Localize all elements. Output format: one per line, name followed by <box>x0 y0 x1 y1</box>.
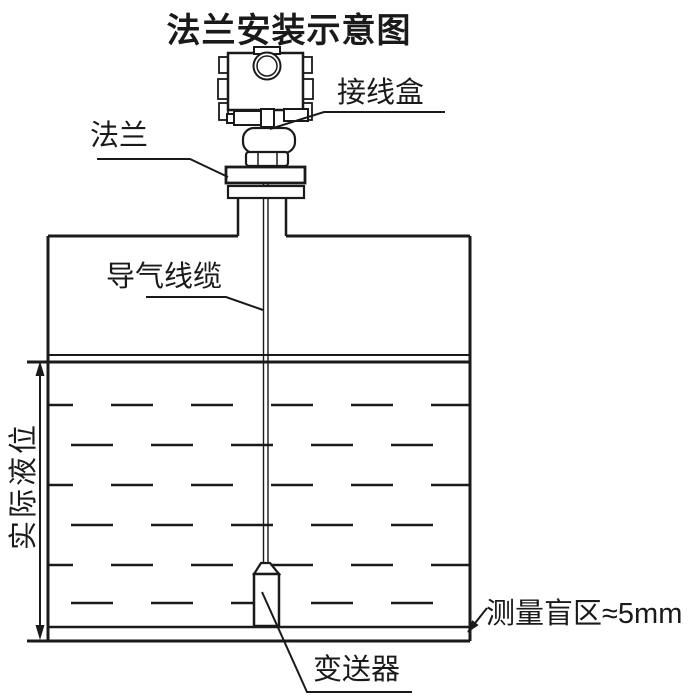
diagram-stage: 法兰安装示意图 接线盒 法兰 导气线缆 实际液位 测量盲区≈5mm 变送器 <box>0 0 700 700</box>
flange-drawing <box>226 167 305 198</box>
junction-box-label: 接线盒 <box>337 78 424 108</box>
swivel-connector <box>243 128 295 153</box>
flange-leader <box>97 159 228 177</box>
mounting-neck <box>238 198 286 236</box>
air-cable-line <box>264 184 269 563</box>
terminal-block <box>227 109 274 127</box>
diagram-title: 法兰安装示意图 <box>167 3 412 52</box>
transmitter-probe <box>254 563 279 626</box>
liquid-surface-line <box>27 355 470 362</box>
display-cap-inner <box>257 56 277 76</box>
transmitter-head-drawing <box>218 47 313 166</box>
mounting-nut <box>246 152 288 166</box>
actual-level-label: 实际液位 <box>0 422 42 550</box>
tank-outline <box>27 236 470 641</box>
air-cable-label: 导气线缆 <box>106 262 222 292</box>
blind-zone-label: 测量盲区≈5mm <box>486 599 682 629</box>
transmitter-label: 变送器 <box>313 655 400 685</box>
flange-label: 法兰 <box>90 121 148 151</box>
air-cable-leader <box>146 297 263 310</box>
